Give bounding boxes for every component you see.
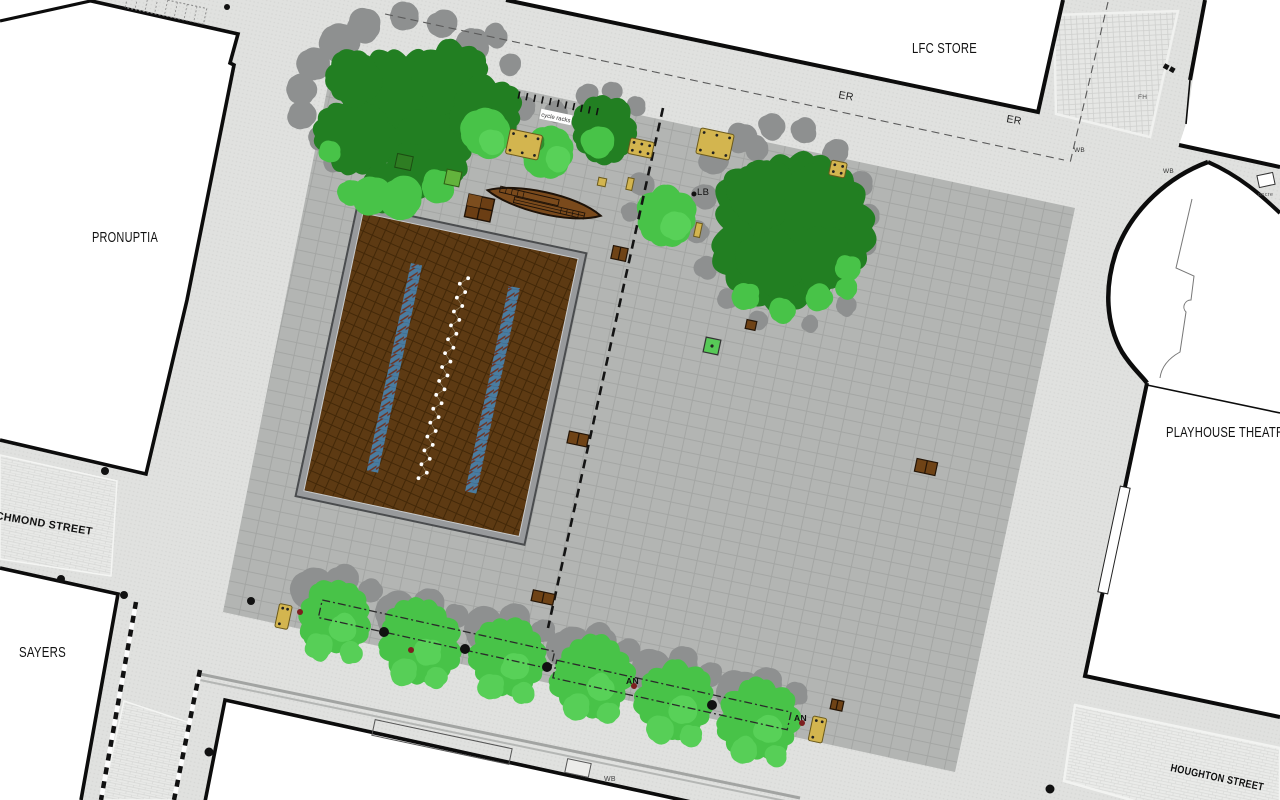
svg-text:LFC STORE: LFC STORE [912, 41, 977, 57]
svg-text:WB: WB [1074, 147, 1085, 154]
svg-text:FH: FH [1138, 94, 1147, 101]
svg-text:PRONUPTIA: PRONUPTIA [92, 230, 158, 246]
svg-text:LB: LB [697, 187, 709, 198]
svg-text:PLAYHOUSE THEATRE: PLAYHOUSE THEATRE [1166, 425, 1280, 441]
svg-text:WB: WB [1163, 168, 1174, 175]
svg-text:WB: WB [604, 776, 616, 783]
svg-text:SAYERS: SAYERS [19, 645, 66, 661]
svg-text:oncre: oncre [1258, 192, 1273, 198]
